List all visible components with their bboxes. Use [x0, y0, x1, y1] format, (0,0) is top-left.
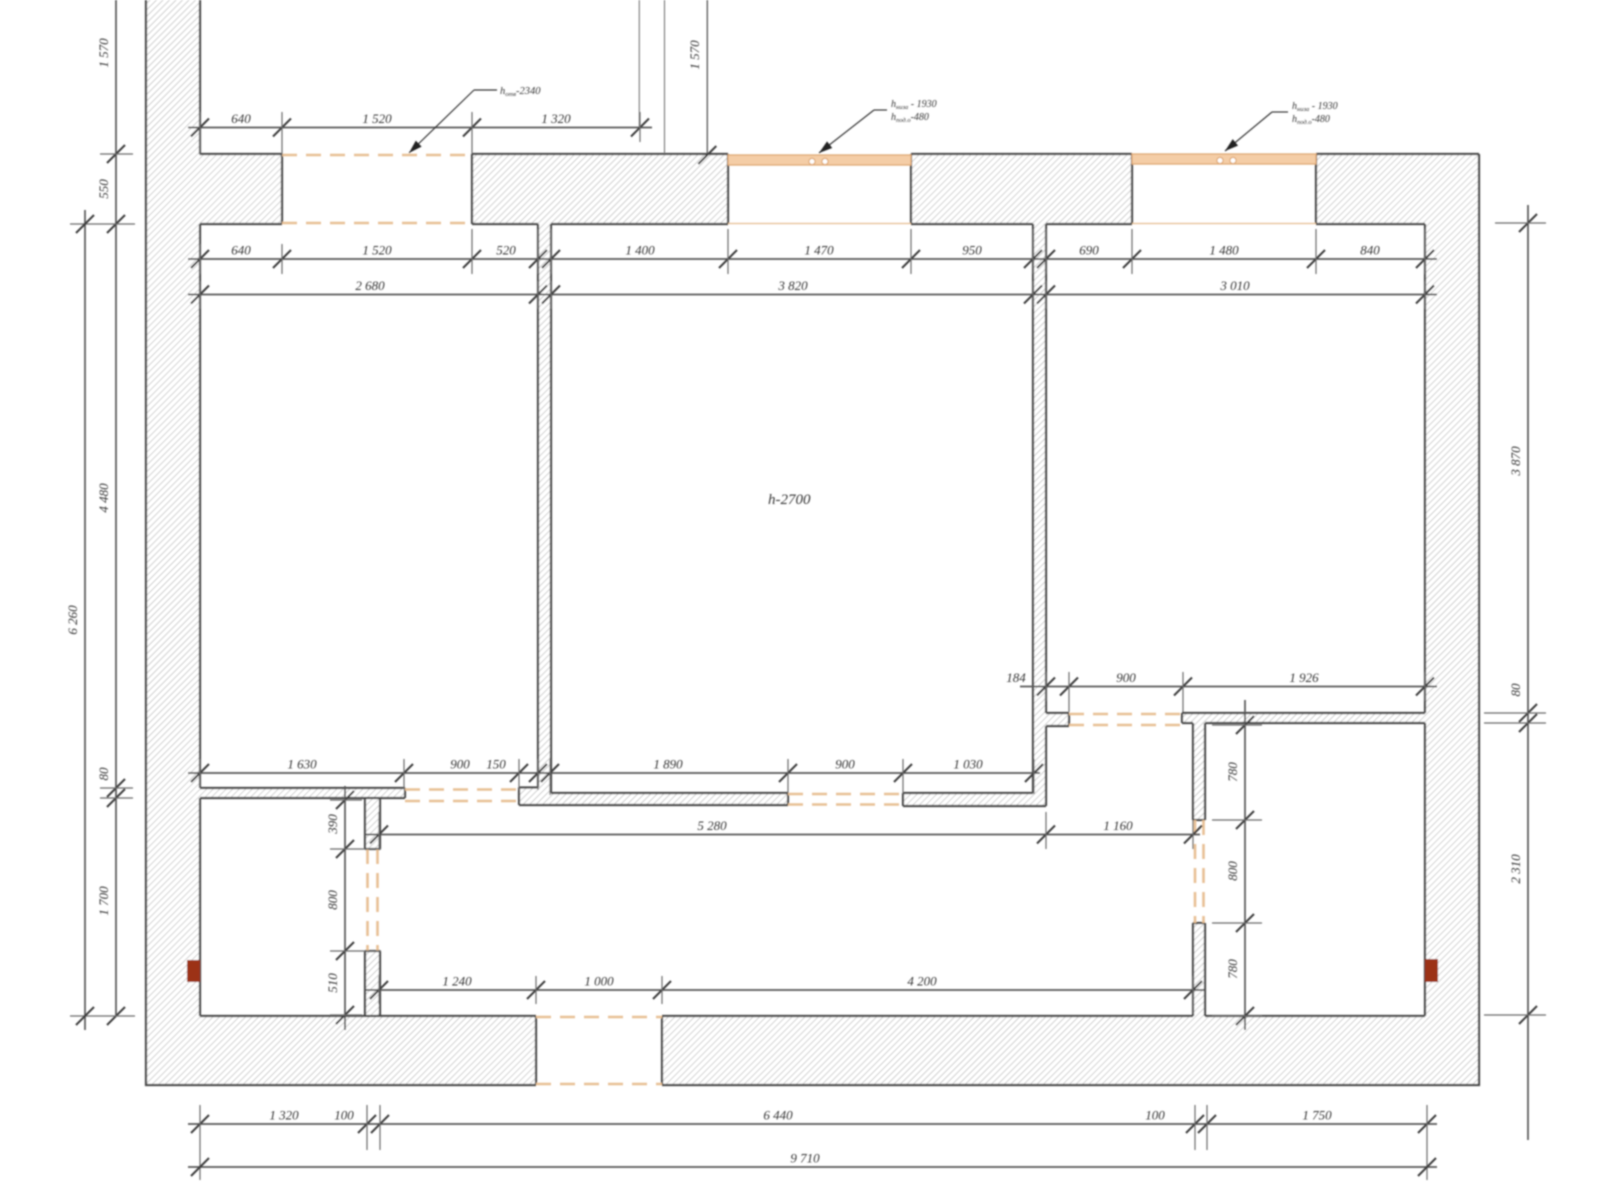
svg-text:100: 100 — [1145, 1108, 1165, 1123]
svg-text:100: 100 — [334, 1108, 354, 1123]
svg-text:1 520: 1 520 — [362, 111, 392, 126]
svg-text:1 480: 1 480 — [1209, 243, 1239, 258]
svg-text:550: 550 — [96, 179, 111, 199]
svg-text:6 260: 6 260 — [65, 605, 80, 635]
svg-text:2 680: 2 680 — [355, 278, 385, 293]
svg-text:4 200: 4 200 — [907, 974, 937, 989]
svg-text:1 000: 1 000 — [584, 974, 614, 989]
svg-text:184: 184 — [1006, 670, 1026, 685]
svg-text:80: 80 — [1508, 683, 1523, 697]
svg-text:510: 510 — [325, 973, 340, 993]
svg-text:1 700: 1 700 — [96, 886, 111, 916]
svg-text:1 520: 1 520 — [362, 243, 392, 258]
svg-text:520: 520 — [496, 243, 516, 258]
svg-text:690: 690 — [1079, 243, 1099, 258]
svg-text:2 310: 2 310 — [1508, 854, 1523, 884]
svg-text:780: 780 — [1225, 959, 1240, 979]
svg-text:1 570: 1 570 — [687, 40, 702, 70]
svg-text:1 890: 1 890 — [653, 757, 683, 772]
svg-text:1 400: 1 400 — [625, 243, 655, 258]
svg-text:1 630: 1 630 — [287, 757, 317, 772]
svg-text:900: 900 — [450, 757, 470, 772]
svg-text:9 710: 9 710 — [790, 1151, 820, 1166]
svg-text:950: 950 — [962, 243, 982, 258]
svg-text:80: 80 — [96, 767, 111, 781]
svg-text:800: 800 — [1225, 861, 1240, 881]
svg-text:800: 800 — [325, 890, 340, 910]
svg-text:3 870: 3 870 — [1508, 446, 1523, 477]
svg-text:840: 840 — [1360, 243, 1380, 258]
svg-text:1 030: 1 030 — [953, 757, 983, 772]
svg-text:640: 640 — [231, 243, 251, 258]
svg-text:5 280: 5 280 — [697, 818, 727, 833]
svg-text:1 320: 1 320 — [269, 1108, 299, 1123]
svg-text:1 570: 1 570 — [96, 38, 111, 68]
svg-text:1 750: 1 750 — [1302, 1108, 1332, 1123]
svg-text:640: 640 — [231, 111, 251, 126]
svg-text:780: 780 — [1225, 762, 1240, 782]
svg-text:390: 390 — [325, 814, 340, 835]
svg-text:4 480: 4 480 — [96, 483, 111, 513]
svg-text:6 440: 6 440 — [763, 1108, 793, 1123]
svg-text:h-2700: h-2700 — [768, 492, 811, 508]
svg-text:1 926: 1 926 — [1289, 670, 1319, 685]
svg-text:1 470: 1 470 — [804, 243, 834, 258]
svg-text:1 240: 1 240 — [442, 974, 472, 989]
svg-text:900: 900 — [835, 757, 855, 772]
svg-text:1 160: 1 160 — [1103, 818, 1133, 833]
svg-text:3 010: 3 010 — [1219, 278, 1250, 293]
svg-text:150: 150 — [486, 757, 506, 772]
svg-text:3 820: 3 820 — [777, 278, 808, 293]
svg-text:900: 900 — [1116, 670, 1136, 685]
svg-text:1 320: 1 320 — [541, 111, 571, 126]
